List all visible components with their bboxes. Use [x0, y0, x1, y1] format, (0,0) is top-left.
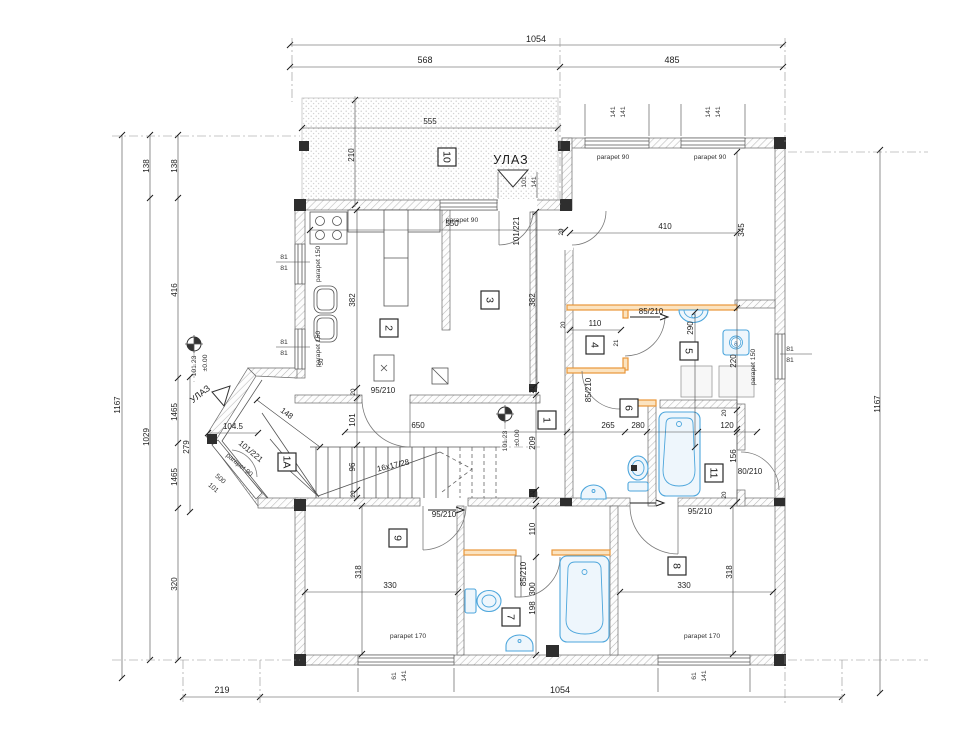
bathtub-icon: [659, 412, 700, 496]
furniture-square: [681, 366, 712, 397]
dim: 209: [528, 436, 537, 450]
dim: 320: [170, 577, 179, 591]
terrace: [302, 98, 558, 202]
dim: 148: [279, 406, 296, 421]
room8-door-arc: [630, 506, 678, 554]
parapet-label: parapet 170: [390, 633, 427, 640]
room-label: 3: [484, 297, 496, 303]
room-label: 11: [708, 468, 720, 479]
level-marker-street: [185, 335, 203, 353]
dim: 500: [213, 473, 226, 486]
parapet-label: parapet 150: [750, 349, 757, 386]
dim: 104.5: [223, 422, 244, 431]
dim-top-total: 1054: [526, 34, 546, 44]
room-label: 10: [441, 151, 453, 163]
door-label: 85/210: [639, 307, 664, 316]
dim-bottom-total: 1054: [550, 685, 570, 695]
dim: 96: [348, 462, 357, 471]
window-dim: 81: [280, 350, 288, 357]
door-label: 85/210: [584, 377, 593, 402]
bathtub-icon: [560, 556, 609, 642]
window-dim: 101: [521, 176, 528, 188]
dim: 101: [206, 482, 219, 495]
dim: 220: [729, 354, 738, 368]
door-label: 80/210: [738, 467, 763, 476]
dim: 280: [631, 421, 645, 430]
dim: 1465: [170, 468, 179, 486]
toilet-icon: [465, 589, 476, 613]
furniture-square: [719, 366, 754, 397]
room-label: 2: [383, 325, 395, 331]
window-dim: 141: [531, 176, 538, 188]
dim: 20: [560, 321, 567, 328]
level-relative: ±0.00: [514, 429, 521, 446]
window-dim: 141: [401, 670, 408, 682]
window-dim: 141: [715, 106, 722, 118]
dim: 101: [348, 413, 357, 427]
level-relative: ±0.00: [202, 354, 209, 371]
room-label: 4: [589, 342, 601, 348]
kitchen: [310, 210, 448, 384]
dim: 290: [686, 321, 695, 335]
window-dim: 81: [280, 265, 288, 272]
window-dim: 61: [391, 672, 398, 680]
room-label: 6: [623, 405, 635, 411]
cooktop-icon: [310, 212, 347, 244]
dim: 120: [720, 421, 734, 430]
dim-top-left: 568: [417, 55, 432, 65]
room-label: 1: [541, 417, 553, 423]
dim: 318: [725, 565, 734, 579]
room-label: 7: [505, 614, 517, 620]
dim: 1167: [113, 396, 122, 414]
parapet-label: parapet 150: [315, 331, 322, 368]
dim: 650: [411, 421, 425, 430]
window-dim: 81: [786, 357, 794, 364]
parapet-label: parapet 90: [446, 217, 479, 224]
dim: 156: [729, 449, 738, 463]
dim: 198: [528, 601, 537, 615]
room10-door-arc: [572, 211, 606, 245]
level-absolute: 101.23: [191, 355, 198, 376]
dim: 318: [354, 565, 363, 579]
dim: 20: [529, 490, 536, 497]
dim: 410: [658, 222, 672, 231]
dim-bottom-left: 219: [214, 685, 229, 695]
dim: 20: [529, 386, 536, 393]
window-dim: 141: [610, 106, 617, 118]
bay-wedge-bottom: [258, 498, 298, 508]
floor-plan-page: a 1054 568 485 555 1054 219 410 550 650 …: [0, 0, 956, 750]
door-label: 95/210: [371, 386, 396, 395]
dim-terrace: 555: [423, 117, 437, 126]
parapet-label: parapet 90: [597, 154, 630, 161]
parapet-label: parapet 150: [315, 246, 322, 283]
window-dim: 141: [620, 106, 627, 118]
door-label: 101/221: [512, 216, 521, 245]
entry-door-gap: [498, 199, 537, 211]
room4-door-arc: [625, 316, 665, 356]
window-dim: 141: [701, 670, 708, 682]
sink-icon: [506, 635, 533, 651]
entrance-label: УЛАЗ: [188, 383, 212, 405]
dim: 20: [721, 409, 728, 416]
dim: 20: [558, 228, 565, 235]
sink-icon: [679, 310, 708, 323]
room-label: 8: [671, 563, 683, 569]
dim: 382: [528, 293, 537, 307]
room-label: 1A: [281, 456, 293, 469]
dim: 265: [601, 421, 615, 430]
parapet-label: parapet 170: [684, 633, 721, 640]
stair-door-arc: [362, 399, 410, 447]
room-label: 5: [683, 348, 695, 354]
dim: 138: [170, 159, 179, 173]
room-label: 9: [392, 535, 404, 541]
entrance-label: УЛАЗ: [493, 153, 528, 167]
dim: 1465: [170, 403, 179, 421]
parapet-label: parapet 90: [694, 154, 727, 161]
dim: 138: [142, 159, 151, 173]
sink-icon: [581, 485, 606, 499]
floor-plan-canvas: a 1054 568 485 555 1054 219 410 550 650 …: [0, 0, 956, 750]
dim: 330: [677, 581, 691, 590]
window-dim: 61: [691, 672, 698, 680]
stair-walk-line: [318, 452, 440, 496]
dim: 20: [350, 490, 357, 497]
window-dim: 81: [280, 339, 288, 346]
dim: 20: [721, 491, 728, 498]
dim: 345: [737, 223, 746, 237]
annotation-a: a: [734, 341, 738, 348]
level-absolute: 101.23: [502, 430, 509, 451]
dim: 1167: [873, 395, 882, 413]
dim: 382: [348, 293, 357, 307]
door-label: 95/210: [432, 510, 457, 519]
door-swing-arrow-3: [630, 500, 664, 506]
dim: 279: [182, 440, 191, 454]
level-marker-hall: [496, 405, 514, 423]
dim: 20: [350, 388, 357, 395]
walls: [206, 138, 785, 665]
stairs-label: 16x17/28: [376, 457, 411, 473]
dim: 110: [528, 522, 537, 535]
door-label: 95/210: [688, 507, 713, 516]
dim: 330: [383, 581, 397, 590]
dim: 210: [347, 148, 356, 162]
sink-kitchen-icon: [314, 286, 337, 313]
window-dim: 81: [786, 346, 794, 353]
window-dim: 141: [705, 106, 712, 118]
window-dim: 81: [280, 254, 288, 261]
dim: 300: [528, 582, 537, 596]
dim-top-right: 485: [664, 55, 679, 65]
door-label: 85/210: [519, 561, 528, 586]
dim: 1029: [142, 428, 151, 446]
dim: 110: [589, 319, 602, 328]
dim: 21: [613, 339, 620, 346]
dim: 416: [170, 283, 179, 297]
